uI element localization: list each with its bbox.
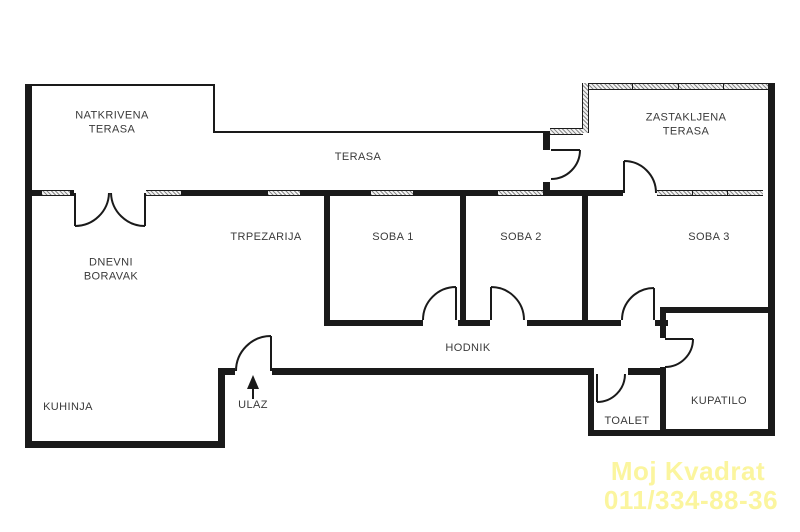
room-label-soba2: SOBA 2 bbox=[500, 231, 542, 245]
room-label-kuhinja: KUHINJA bbox=[43, 401, 93, 415]
room-label-zastakljena-terasa: ZASTAKLJENA TERASA bbox=[646, 111, 727, 139]
entrance-arrow-icon bbox=[247, 375, 259, 389]
door-arc bbox=[75, 193, 109, 226]
door-arc bbox=[624, 161, 656, 193]
room-label-soba3: SOBA 3 bbox=[688, 231, 730, 245]
room-label-soba1: SOBA 1 bbox=[372, 231, 414, 245]
room-label-terasa: TERASA bbox=[335, 151, 381, 165]
door-arc bbox=[622, 288, 654, 320]
door-arc bbox=[665, 339, 693, 367]
room-label-ulaz: ULAZ bbox=[238, 399, 268, 413]
room-label-hodnik: HODNIK bbox=[445, 342, 490, 356]
room-label-toalet: TOALET bbox=[605, 415, 650, 429]
watermark-phone: 011/334-88-36 bbox=[604, 485, 778, 516]
watermark-brand: Moj Kvadrat bbox=[611, 456, 765, 487]
door-arc bbox=[111, 193, 145, 226]
door-arc bbox=[491, 287, 524, 320]
room-label-natkrivena-terasa: NATKRIVENA TERASA bbox=[75, 109, 148, 137]
room-label-kupatilo: KUPATILO bbox=[691, 395, 747, 409]
floor-plan: NATKRIVENA TERASA TERASA ZASTAKLJENA TER… bbox=[0, 0, 800, 532]
room-label-trpezarija: TRPEZARIJA bbox=[230, 231, 301, 245]
door-arc bbox=[597, 374, 625, 402]
door-arc bbox=[236, 336, 271, 371]
room-label-dnevni-boravak: DNEVNI BORAVAK bbox=[84, 256, 138, 284]
door-arc bbox=[551, 150, 580, 179]
door-arc bbox=[423, 287, 456, 320]
